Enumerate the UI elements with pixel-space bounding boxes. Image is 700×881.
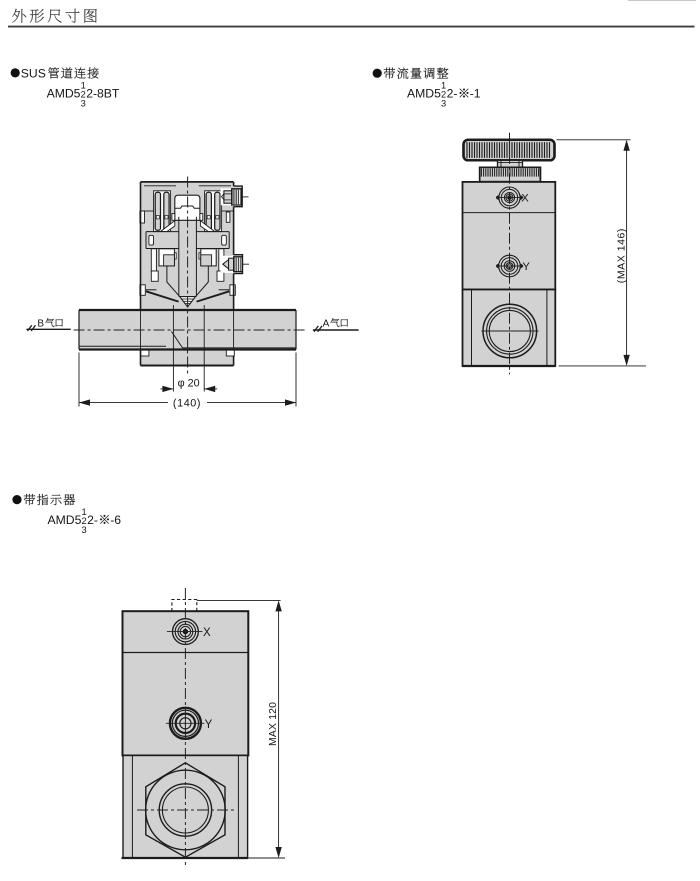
svg-text:φ 20: φ 20 (178, 377, 200, 389)
svg-text:SUS: SUS (21, 66, 46, 80)
svg-text:AMD5: AMD5 (48, 513, 82, 527)
svg-text:2-: 2- (87, 513, 98, 527)
svg-text:-1: -1 (470, 87, 481, 101)
svg-text:-6: -6 (110, 513, 121, 527)
svg-text:MAX 120: MAX 120 (268, 702, 279, 746)
svg-text:A: A (323, 318, 330, 329)
svg-text:AMD5: AMD5 (47, 87, 81, 101)
svg-text:Y: Y (205, 719, 213, 731)
svg-text:2-8BT: 2-8BT (86, 87, 120, 101)
svg-text:3: 3 (82, 525, 87, 535)
svg-text:X: X (521, 193, 529, 205)
svg-text:X: X (203, 627, 211, 639)
svg-text:B: B (37, 318, 44, 329)
svg-text:(140): (140) (173, 397, 201, 409)
svg-text:3: 3 (81, 98, 86, 108)
svg-text:2-: 2- (447, 87, 458, 101)
svg-text:3: 3 (441, 98, 446, 108)
svg-text:AMD5: AMD5 (407, 87, 441, 101)
svg-text:(MAX 146): (MAX 146) (616, 228, 628, 283)
svg-text:Y: Y (522, 261, 530, 273)
